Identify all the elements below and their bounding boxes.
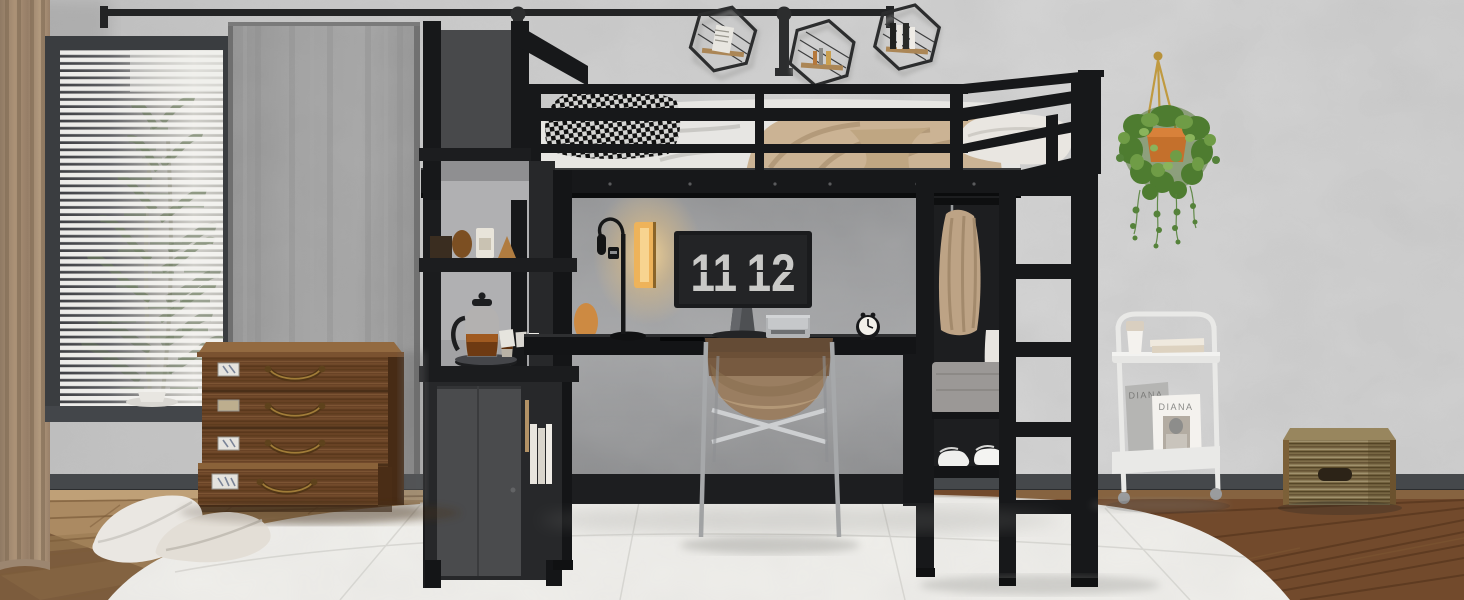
svg-text:11: 11 — [691, 244, 737, 303]
svg-text:DIANA: DIANA — [1158, 402, 1193, 412]
svg-text:12: 12 — [747, 244, 796, 303]
